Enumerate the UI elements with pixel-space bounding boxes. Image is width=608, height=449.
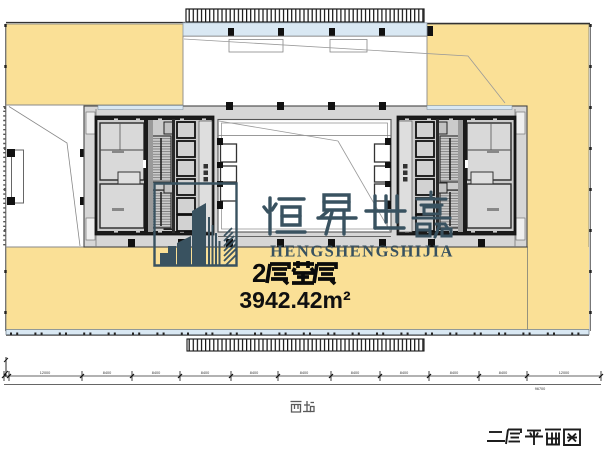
svg-text:8400: 8400 — [250, 371, 258, 375]
svg-text:HENGSHENGSHIJIA: HENGSHENGSHIJIA — [270, 242, 454, 261]
svg-text:8400: 8400 — [450, 371, 458, 375]
svg-text:8400: 8400 — [300, 371, 308, 375]
svg-text:8400: 8400 — [201, 371, 209, 375]
svg-text:8400: 8400 — [351, 371, 359, 375]
svg-text:8400: 8400 — [152, 371, 160, 375]
svg-text:12000: 12000 — [40, 371, 51, 375]
svg-text:8400: 8400 — [499, 371, 507, 375]
svg-text:3942.42m²: 3942.42m² — [239, 287, 351, 313]
svg-text:2: 2 — [252, 258, 266, 288]
svg-text:96700: 96700 — [535, 387, 546, 391]
svg-text:8400: 8400 — [400, 371, 408, 375]
svg-text:8400: 8400 — [103, 371, 111, 375]
svg-text:12000: 12000 — [559, 371, 570, 375]
